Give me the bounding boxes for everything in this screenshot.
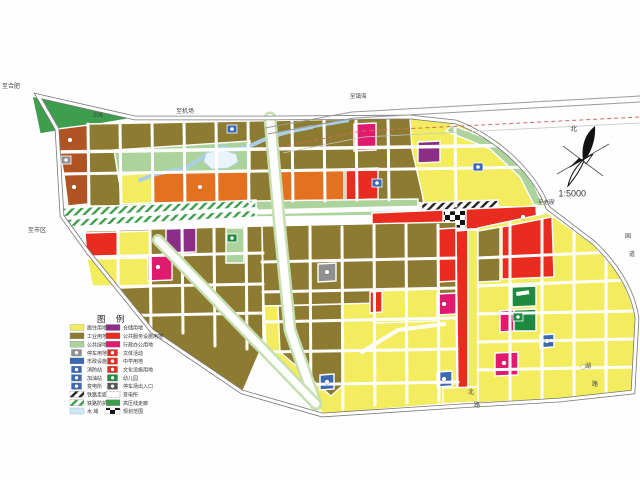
zone-red [438, 228, 456, 282]
road [324, 118, 325, 201]
zone-greenL [226, 228, 244, 263]
zone-yellow [468, 230, 478, 387]
legend-swatch-greenL [70, 341, 84, 347]
legend-item-label: 公共服务设施用地 [123, 333, 163, 340]
legend-item-label: 公共绿地 [87, 341, 107, 348]
legend-icon-dot [75, 376, 78, 379]
legend-item-label: 行政办公用地 [123, 341, 153, 348]
planning-map-document: 206至机场至镇海至老碶至合肥至市区国道湖路北路 图 例居住用地工业用地公共绿地… [0, 0, 640, 480]
zone-rust [64, 173, 88, 206]
facility-box-dot [64, 158, 68, 162]
legend-item-label: 幼儿园 [123, 375, 138, 382]
zone-purple [418, 141, 440, 163]
legend-swatch-red [106, 333, 120, 339]
road [455, 123, 456, 206]
legend-icon-dot [75, 368, 78, 371]
legend-icon-dot [75, 351, 78, 354]
legend-item-label: 规划范围 [123, 408, 143, 415]
facility-dot-icon [442, 302, 447, 307]
legend-item-label: 停车场出入口 [123, 383, 153, 390]
legend-title: 图 例 [97, 314, 128, 324]
legend-icon-dot [111, 376, 114, 379]
zone-olive [478, 227, 500, 282]
facility-box-dot [230, 127, 234, 131]
planning-map-canvas: 206至机场至镇海至老碶至合肥至市区国道湖路北路 图 例居住用地工业用地公共绿地… [0, 0, 640, 480]
legend-swatch-purple [106, 325, 120, 331]
facility-box-dot [516, 315, 520, 319]
legend-item-label: 高压线走廊 [123, 400, 148, 407]
facility-dot-icon [521, 215, 526, 220]
legend-item-label: 消防站 [87, 366, 102, 373]
legend-item-label: 仓储用地 [123, 325, 143, 332]
facility-dot-icon [325, 270, 330, 275]
legend-swatch-hatchB [70, 391, 84, 397]
road [184, 121, 185, 203]
map-label: 206 [93, 113, 104, 119]
zone-greenD [512, 286, 536, 307]
road [120, 123, 121, 204]
zone-crimson [495, 352, 518, 376]
zone-red [370, 291, 382, 313]
legend-swatch-green [106, 400, 120, 406]
map-label: 道 [629, 250, 635, 258]
legend-item-label: 加油站 [87, 375, 102, 382]
road [214, 228, 215, 346]
facility-dot-icon [72, 185, 77, 190]
legend-item-label: 居住用地 [87, 325, 107, 332]
map-label: 国 [625, 233, 631, 240]
legend-swatch-yellow [70, 325, 84, 331]
legend-swatch-crimson [106, 341, 120, 347]
facility-dot-icon [502, 361, 507, 366]
legend-item-label: 中学用地 [123, 358, 143, 365]
map-label: 至机场 [176, 107, 194, 115]
scale-label: 1:5000 [559, 189, 587, 199]
legend-item-label: 文化设施用地 [123, 366, 153, 373]
facility-dot-icon [545, 339, 550, 344]
legend-item-label: 水 域 [87, 408, 98, 415]
legend-item-label: 变电所 [123, 392, 138, 399]
north-label: 北 [571, 125, 578, 133]
legend-swatch-hatchG [70, 400, 84, 406]
north-arrow-icon [557, 126, 609, 186]
road [342, 227, 343, 409]
road [388, 117, 389, 200]
zone-orange [278, 169, 344, 201]
legend-item-label: 文体活动 [123, 350, 143, 357]
road [438, 225, 439, 401]
legend-icon-dot [111, 368, 114, 371]
zone-yellow [118, 231, 150, 257]
legend-icon-dot [111, 384, 114, 387]
road [406, 225, 407, 403]
facility-box-dot [230, 236, 234, 240]
compass: 北 1:5000 [557, 125, 609, 199]
road [182, 228, 183, 333]
legend-item-label: 铁路走廊 [87, 392, 107, 399]
road [292, 119, 293, 201]
road [88, 124, 89, 205]
facility-dot-icon [68, 138, 73, 143]
legend-item-label: 变电所 [87, 383, 102, 390]
legend-swatch-blue [70, 358, 84, 364]
legend-item-label: 工业用地 [87, 333, 107, 340]
zone-rust [57, 125, 88, 153]
legend-icon-dot [111, 359, 114, 362]
facility-dot-icon [442, 377, 447, 382]
map-label: 至合肥 [2, 82, 20, 90]
facility-box-dot [476, 165, 480, 169]
legend-icon-dot [75, 384, 78, 387]
facility-dot-icon [198, 185, 203, 190]
zone-red [456, 230, 468, 389]
facility-dot-icon [156, 265, 161, 270]
legend-item-label: 停车用地 [87, 350, 107, 357]
road [248, 120, 249, 202]
road [216, 120, 217, 202]
legend-swatch-dashed [106, 391, 120, 397]
road [356, 118, 357, 200]
legend-swatch-water [70, 408, 84, 414]
map-label: 至镇海 [350, 92, 367, 100]
road [374, 225, 375, 405]
road [152, 122, 153, 203]
legend-swatch-checker [106, 408, 120, 414]
facility-box-dot [375, 181, 379, 185]
legend-icon-dot [111, 351, 114, 354]
facility-dot-icon [325, 380, 330, 385]
road [317, 414, 322, 440]
legend-swatch-olive [70, 333, 84, 339]
road [460, 406, 463, 430]
